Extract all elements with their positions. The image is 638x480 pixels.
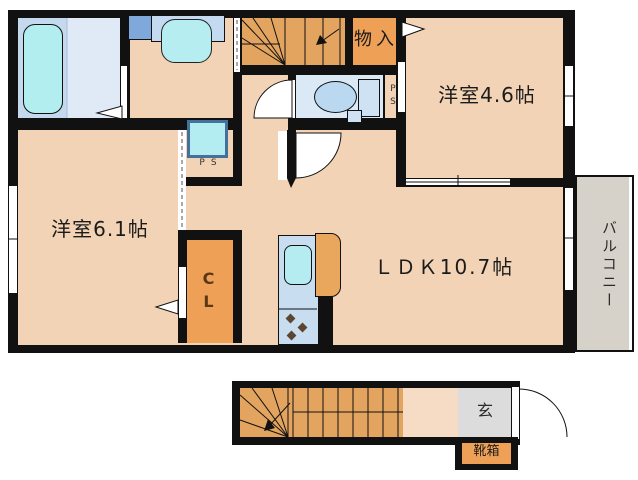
wall	[178, 230, 238, 240]
bedroom-large-label: 洋室6.1帖	[20, 218, 180, 240]
stairs-1f	[240, 388, 403, 437]
refrigerator-icon	[315, 233, 341, 297]
washing-machine-icon	[187, 120, 228, 158]
floor-plan: 洋室6.1帖 洋室4.6帖 ＬＤＫ10.7帖 物入 CL PS PS バルコニー…	[0, 0, 638, 480]
window	[8, 186, 18, 293]
wall	[287, 130, 296, 178]
stairs-2f	[242, 18, 345, 65]
washer-pan-icon	[128, 15, 153, 40]
bathtub-icon	[23, 24, 63, 114]
closet-cl-label: CL	[197, 261, 217, 323]
entrance-door-leaf	[511, 386, 520, 440]
bath-door-gap	[121, 66, 127, 118]
ps-washroom-label: PS	[188, 159, 228, 169]
ps-hall-label: PS	[384, 78, 397, 116]
washroom-sliding-door	[234, 18, 240, 72]
hall-1f	[403, 388, 458, 437]
wall	[288, 118, 403, 130]
toilet-door-gap	[289, 80, 295, 118]
entrance-label: 玄	[458, 402, 512, 420]
kitchen-sink-icon	[284, 245, 312, 285]
wall	[8, 345, 575, 353]
bedroom-large-sliding-door	[178, 130, 186, 230]
entrance-door-arc	[519, 389, 567, 437]
bathroom-shower-area	[67, 18, 120, 118]
wall	[8, 10, 18, 353]
wall	[233, 230, 242, 343]
toilet-bowl-icon	[314, 81, 357, 113]
bedroom-small-label: 洋室4.6帖	[405, 84, 569, 106]
closet-door-gap	[179, 267, 186, 318]
toilet-paper-box-icon	[347, 110, 362, 123]
ldk-label: ＬＤＫ10.7帖	[344, 256, 544, 278]
room-sliding-door	[406, 178, 510, 186]
balcony-sliding-window	[564, 188, 574, 290]
wall	[178, 177, 242, 186]
storage-monoiri-label: 物入	[350, 30, 398, 50]
wall	[8, 10, 575, 18]
balcony-label: バルコニー	[591, 198, 617, 332]
hall-door-gap	[278, 131, 287, 180]
shoebox-label: 靴箱	[462, 445, 511, 459]
bedroom-small-door-gap	[398, 62, 405, 112]
sink-basin-icon	[161, 19, 212, 63]
wall	[233, 65, 403, 75]
